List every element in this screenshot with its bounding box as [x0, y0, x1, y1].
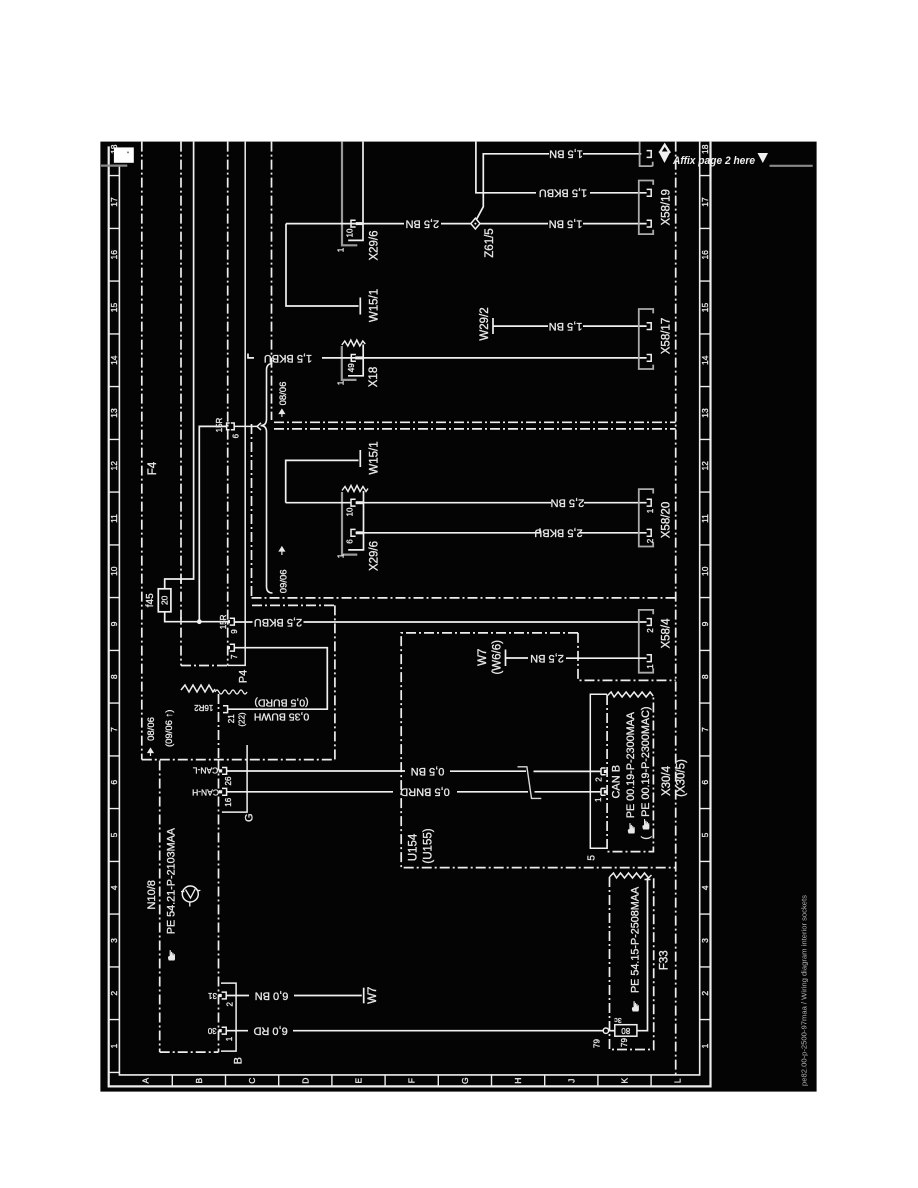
- svg-text:W7: W7: [477, 649, 489, 666]
- svg-text:49: 49: [347, 363, 356, 372]
- svg-text:G: G: [460, 1077, 470, 1084]
- svg-text:6,0 BN: 6,0 BN: [255, 989, 289, 1001]
- svg-text:2,5 BN: 2,5 BN: [530, 652, 564, 664]
- svg-text:1: 1: [109, 1043, 119, 1048]
- svg-text:CAN B: CAN B: [611, 765, 623, 799]
- svg-text:16R2: 16R2: [194, 703, 214, 712]
- svg-text:5: 5: [109, 832, 119, 837]
- svg-text:F4: F4: [147, 461, 159, 475]
- svg-text:P4: P4: [237, 670, 249, 683]
- svg-text:1: 1: [336, 380, 345, 385]
- svg-text:2: 2: [595, 777, 604, 782]
- svg-text:30: 30: [207, 1026, 216, 1035]
- svg-text:11: 11: [109, 514, 119, 523]
- svg-text:20: 20: [159, 595, 169, 605]
- svg-text:W15/1: W15/1: [369, 289, 381, 322]
- svg-text:F33: F33: [658, 950, 670, 970]
- svg-text:1: 1: [700, 1043, 710, 1048]
- svg-text:X58/17: X58/17: [661, 318, 673, 354]
- svg-text:9: 9: [230, 629, 239, 634]
- svg-text:0,5 BN: 0,5 BN: [411, 765, 445, 777]
- svg-text:X29/6: X29/6: [369, 230, 381, 260]
- svg-text:1,5 BKBU: 1,5 BKBU: [539, 187, 587, 199]
- svg-text:2: 2: [700, 991, 710, 996]
- svg-text:26: 26: [224, 776, 233, 785]
- svg-text:15: 15: [109, 303, 119, 313]
- svg-text:15R: 15R: [215, 417, 224, 432]
- svg-text:31: 31: [208, 991, 217, 1000]
- svg-text:10: 10: [109, 566, 119, 576]
- svg-text:Affix page 2 here: Affix page 2 here: [672, 155, 755, 167]
- svg-text:10: 10: [700, 566, 710, 576]
- svg-text:W29/2: W29/2: [479, 307, 491, 340]
- svg-text:2,5 BN: 2,5 BN: [551, 497, 585, 509]
- svg-text:6: 6: [109, 780, 119, 785]
- svg-text:7: 7: [109, 727, 119, 732]
- svg-text:15R: 15R: [219, 614, 228, 629]
- svg-text:16: 16: [700, 250, 710, 260]
- svg-text:1: 1: [225, 1036, 234, 1041]
- svg-text:3: 3: [700, 938, 710, 943]
- svg-text:0,5 BNRD: 0,5 BNRD: [400, 786, 450, 798]
- svg-text:CAN-L: CAN-L: [192, 766, 218, 776]
- svg-text:8: 8: [109, 674, 119, 679]
- svg-text:(09/06 ↑): (09/06 ↑): [164, 710, 175, 748]
- svg-text:(W6/6): (W6/6): [491, 640, 503, 675]
- svg-text:3c: 3c: [614, 1016, 622, 1023]
- svg-text:9: 9: [109, 621, 119, 626]
- svg-text:B: B: [233, 1057, 245, 1064]
- svg-text:4: 4: [700, 885, 710, 890]
- svg-text:Z61/5: Z61/5: [484, 228, 496, 257]
- svg-text:1: 1: [646, 664, 655, 669]
- svg-text:W15/1: W15/1: [369, 441, 381, 474]
- svg-text:5: 5: [587, 855, 598, 861]
- svg-text:H: H: [513, 1078, 523, 1084]
- svg-text:6: 6: [346, 539, 355, 544]
- svg-text:10: 10: [346, 228, 355, 237]
- svg-text:2,5 BKBU: 2,5 BKBU: [254, 616, 302, 628]
- svg-text:9: 9: [700, 621, 710, 626]
- svg-text:7: 7: [700, 727, 710, 732]
- svg-text:A: A: [141, 1078, 151, 1084]
- svg-text:X18: X18: [368, 367, 380, 387]
- svg-text:1: 1: [337, 553, 346, 558]
- svg-text:14: 14: [109, 355, 119, 365]
- svg-text:08/06: 08/06: [278, 382, 289, 406]
- svg-text:2: 2: [226, 1002, 235, 1007]
- svg-text:6,0 RD: 6,0 RD: [253, 1025, 287, 1037]
- svg-text:X58/19: X58/19: [661, 189, 673, 225]
- svg-text:18: 18: [700, 144, 710, 154]
- svg-text:1: 1: [646, 508, 655, 513]
- svg-text:17: 17: [700, 197, 710, 207]
- svg-text:X29/6: X29/6: [369, 541, 381, 571]
- svg-text:1: 1: [336, 247, 345, 252]
- svg-text:(X30/5): (X30/5): [676, 759, 688, 797]
- svg-text:4: 4: [109, 885, 119, 890]
- svg-text:1,5 BKBU: 1,5 BKBU: [264, 352, 312, 364]
- svg-text:09/06: 09/06: [279, 569, 290, 593]
- svg-text:3: 3: [109, 938, 119, 943]
- svg-text:F: F: [407, 1078, 417, 1083]
- svg-text:6: 6: [232, 433, 241, 438]
- svg-text:U154: U154: [408, 833, 420, 861]
- svg-text:D: D: [300, 1078, 310, 1084]
- svg-text:79: 79: [593, 1039, 602, 1048]
- svg-text:X58/20: X58/20: [661, 502, 673, 538]
- svg-text:(U155): (U155): [423, 828, 435, 863]
- svg-text:PE 54.15-P-2508MAA: PE 54.15-P-2508MAA: [629, 886, 641, 993]
- svg-text:PE 00.19-P-2300MAC): PE 00.19-P-2300MAC): [640, 707, 652, 817]
- svg-text:6: 6: [700, 780, 710, 785]
- svg-text:CAN-H: CAN-H: [192, 788, 219, 798]
- svg-text:1,5 BN: 1,5 BN: [549, 148, 583, 160]
- svg-text:2: 2: [109, 991, 119, 996]
- svg-text:pe82.00-p-2500-97maa / Wiring: pe82.00-p-2500-97maa / Wiring diagram in…: [800, 895, 809, 1086]
- svg-text:7: 7: [230, 654, 239, 659]
- svg-text:2,5 BKBU: 2,5 BKBU: [534, 527, 582, 539]
- svg-text:1,5 BN: 1,5 BN: [549, 218, 583, 230]
- svg-text:5: 5: [700, 832, 710, 837]
- svg-text:16: 16: [224, 797, 233, 806]
- svg-text:B: B: [194, 1078, 204, 1084]
- svg-text:L: L: [673, 1078, 683, 1083]
- svg-text:15: 15: [700, 303, 710, 313]
- svg-text:K: K: [620, 1078, 630, 1084]
- svg-text:12: 12: [700, 461, 710, 471]
- svg-text:2: 2: [646, 538, 655, 543]
- svg-text:C: C: [247, 1078, 257, 1084]
- svg-text:N10/8: N10/8: [146, 880, 158, 909]
- svg-text:12: 12: [109, 461, 119, 471]
- svg-text:PE 00.19-P-2300MAA: PE 00.19-P-2300MAA: [625, 711, 637, 818]
- svg-text:J: J: [566, 1079, 576, 1083]
- svg-text:79: 79: [620, 1038, 629, 1047]
- svg-text:(22): (22): [237, 712, 246, 727]
- svg-text:1: 1: [594, 797, 603, 802]
- svg-text:0,35 BUWH: 0,35 BUWH: [254, 710, 309, 722]
- svg-text:16: 16: [109, 250, 119, 260]
- svg-text:2,5 BN: 2,5 BN: [405, 218, 439, 230]
- svg-text:X30/4: X30/4: [661, 765, 673, 796]
- svg-text:G: G: [244, 813, 256, 822]
- svg-text:(0,5 BURD): (0,5 BURD): [254, 696, 308, 708]
- svg-text:E: E: [354, 1078, 364, 1084]
- svg-text:X58/4: X58/4: [661, 618, 673, 649]
- svg-text:8: 8: [700, 674, 710, 679]
- svg-text:11: 11: [700, 514, 710, 523]
- svg-text:W7: W7: [367, 987, 379, 1004]
- svg-text:13: 13: [700, 408, 710, 418]
- svg-text:21: 21: [227, 714, 236, 723]
- svg-text:13: 13: [109, 408, 119, 418]
- svg-text:80: 80: [621, 1026, 630, 1035]
- svg-text:PE 54.21-P-2103MAA: PE 54.21-P-2103MAA: [165, 827, 177, 934]
- svg-text:2: 2: [646, 628, 655, 633]
- svg-text:10: 10: [346, 507, 355, 516]
- svg-text:f45: f45: [145, 593, 156, 607]
- svg-text:14: 14: [700, 355, 710, 365]
- svg-text:(: (: [640, 836, 652, 840]
- svg-text:08/06: 08/06: [146, 717, 157, 741]
- svg-text:1,5 BN: 1,5 BN: [549, 320, 583, 332]
- svg-text:17: 17: [109, 197, 119, 207]
